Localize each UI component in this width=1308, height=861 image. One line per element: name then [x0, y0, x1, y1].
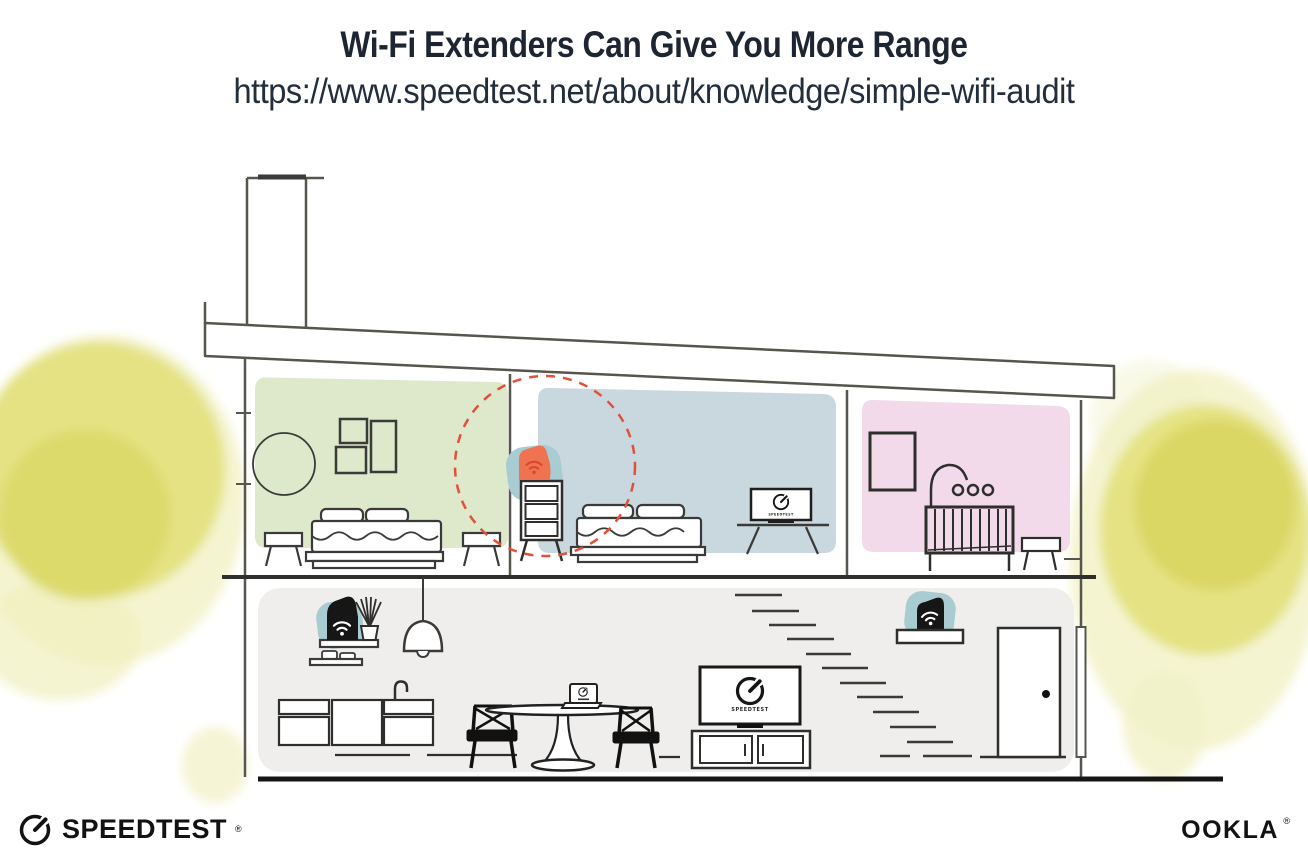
- watercolor-blob-left: [0, 335, 248, 803]
- watercolor-blob-right: [1070, 360, 1308, 780]
- bed: [571, 505, 705, 562]
- svg-text:SPEEDTEST: SPEEDTEST: [731, 707, 769, 713]
- ookla-logo: OOKLA ®: [1181, 816, 1290, 845]
- house-illustration: SPEEDTEST: [0, 0, 1308, 861]
- speedtest-wordmark: SPEEDTEST: [62, 814, 227, 845]
- door-sidelight: [1077, 627, 1086, 757]
- registered-mark: ®: [235, 824, 242, 834]
- chimney: [247, 175, 324, 330]
- ookla-wordmark: OOKLA: [1181, 816, 1279, 844]
- svg-text:SPEEDTEST: SPEEDTEST: [768, 513, 794, 517]
- tv-console: [692, 731, 810, 768]
- wifi-extender-upstairs: [519, 446, 551, 480]
- living-room-tv: SPEEDTEST: [692, 667, 810, 768]
- speedtest-logo: SPEEDTEST ®: [18, 811, 242, 847]
- infographic-page: Wi-Fi Extenders Can Give You More Range …: [0, 0, 1308, 861]
- router-shelf-left: [314, 597, 381, 651]
- nightstand-right: [463, 533, 500, 566]
- stool: [1022, 538, 1060, 570]
- doorknob: [1042, 690, 1050, 698]
- registered-mark: ®: [1283, 816, 1290, 826]
- speedtest-gauge-icon: [18, 811, 54, 847]
- nightstand-left: [265, 533, 302, 566]
